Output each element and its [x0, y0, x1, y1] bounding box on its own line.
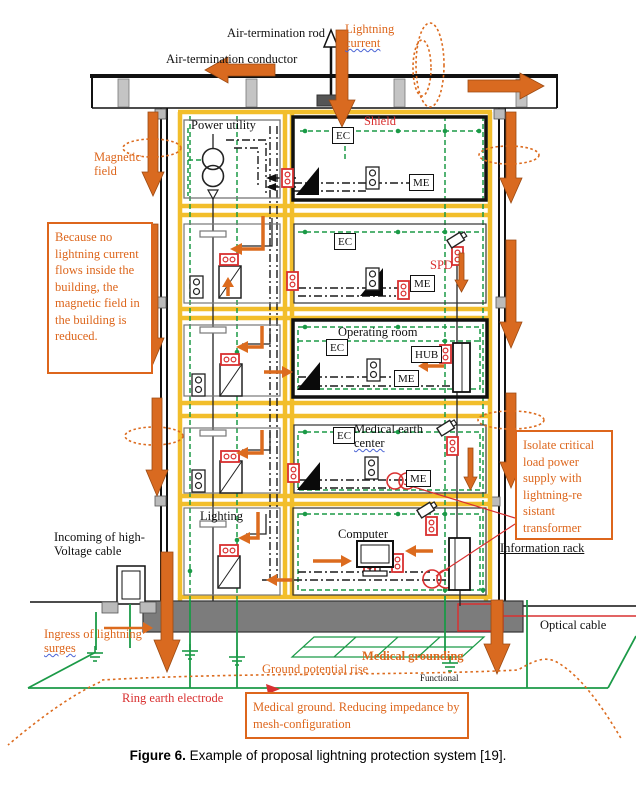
medical-grounding-label: Medical grounding — [362, 649, 464, 663]
me-box: ME — [394, 370, 419, 387]
figure-caption-text: Example of proposal lightning protection… — [186, 748, 506, 763]
bed-icon — [297, 462, 320, 490]
magnetic-field-label: Magneticfield — [94, 150, 156, 178]
information-rack-label: Information rack — [500, 541, 584, 555]
outlet-icon — [366, 268, 379, 290]
lamp-icon — [200, 430, 226, 436]
ec-box: EC — [333, 427, 355, 444]
computer-label: Computer — [338, 527, 388, 541]
spd-label: SPD — [430, 258, 453, 272]
computer-icon — [357, 541, 393, 576]
spd-icon — [288, 464, 299, 482]
operating-room-label: Operating room — [338, 325, 418, 339]
ingress-line2: surges — [44, 641, 76, 655]
ec-box: EC — [332, 127, 354, 144]
outlet-icon — [366, 167, 379, 189]
outlet-icon — [365, 457, 378, 479]
outlet-icon — [192, 470, 205, 492]
ingress-surges-label: Ingress of lightningsurges — [44, 627, 166, 655]
air-termination-rod-label: Air-termination rod — [227, 26, 325, 40]
reduced-field-callout: Because no lightning current flows insid… — [47, 222, 153, 374]
magnetic-word2: field — [94, 164, 117, 178]
spd-icon — [426, 517, 437, 535]
lightning-word1: Lightning — [345, 22, 394, 36]
power-utility-label: Power utility — [191, 118, 256, 132]
medical-ground-callout: Medical ground. Reducing impedance by me… — [245, 692, 469, 739]
panel-icon — [220, 461, 242, 493]
rack-icons — [449, 343, 470, 590]
figure-caption-number: Figure 6. — [130, 748, 186, 763]
spd-icon — [221, 451, 239, 462]
spd-icon — [220, 254, 238, 265]
air-termination-conductor-label: Air-termination conductor — [166, 52, 297, 66]
lightning-word2: current — [345, 36, 380, 50]
magnetic-word1: Magnetic — [94, 150, 141, 164]
outlet-icon — [190, 276, 203, 298]
medical-center-line1: Medical earth — [354, 422, 423, 436]
me-box: ME — [410, 275, 435, 292]
shield-room — [293, 117, 486, 200]
spd-icon — [398, 281, 409, 299]
panel-icon — [220, 364, 242, 396]
spd-icon — [287, 272, 298, 290]
lighting-label: Lighting — [200, 509, 243, 523]
bed-icon — [297, 362, 320, 390]
spd-icon — [221, 354, 239, 365]
ingress-line1: Ingress of lightning — [44, 627, 142, 641]
ec-box: EC — [326, 339, 348, 356]
functional-label: Functional — [420, 673, 459, 683]
panel-icon — [218, 556, 240, 588]
shield-label: Shield — [364, 114, 396, 128]
figure-diagram: Air-termination rod Lightningcurrent Air… — [0, 0, 636, 788]
rack-icon — [453, 343, 470, 392]
isolate-transformer-callout: Isolate critical load power supply with … — [515, 430, 613, 540]
outlet-icon — [367, 359, 380, 381]
spd-icon — [282, 169, 293, 187]
camera-icon — [447, 230, 468, 248]
spd-icon — [220, 545, 238, 556]
lamp-icon — [200, 231, 226, 237]
ring-earth-electrode-label: Ring earth electrode — [122, 691, 223, 705]
medical-center-line2: center — [354, 436, 385, 450]
me-box: ME — [406, 470, 431, 487]
figure-caption: Figure 6. Example of proposal lightning … — [0, 748, 636, 763]
hub-box: HUB — [411, 346, 442, 363]
medical-earth-center-label: Medical earthcenter — [354, 422, 450, 450]
ec-box: EC — [334, 233, 356, 250]
lamp-icon — [200, 327, 226, 333]
incoming-high-voltage-label: Incoming of high-Voltage cable — [54, 530, 166, 558]
me-box: ME — [409, 174, 434, 191]
information-rack-icon — [449, 538, 470, 590]
outlet-icon — [192, 374, 205, 396]
transformer-icon — [203, 149, 224, 200]
lightning-current-label: Lightningcurrent — [345, 22, 417, 50]
bed-icon — [296, 167, 319, 195]
ground-potential-rise-label: Ground potential rise — [262, 662, 368, 676]
optical-cable-label: Optical cable — [540, 618, 606, 632]
